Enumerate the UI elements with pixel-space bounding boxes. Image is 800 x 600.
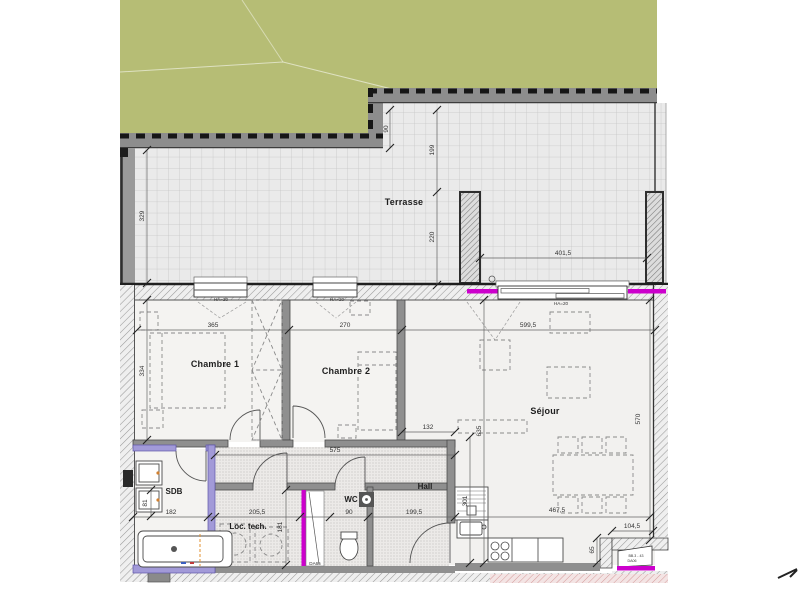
interior-door-label: DA65 xyxy=(309,561,321,566)
dim-living-depth: 570 xyxy=(635,413,642,424)
bathtub-inner xyxy=(143,536,223,562)
kitchen-counter xyxy=(488,538,563,562)
service-wall-3 xyxy=(365,483,447,490)
bottom-wall-right xyxy=(455,563,600,571)
wall-post xyxy=(120,148,128,157)
sliding-door-sill-label: HA=20 xyxy=(554,301,569,306)
pillar-left xyxy=(460,192,480,283)
room-label-wc: WC xyxy=(344,495,358,504)
window1-sill-label: HA=20 xyxy=(214,297,229,302)
toilet-tank xyxy=(341,532,357,539)
entrance-door-label-1: BB.3 - 43 xyxy=(629,554,644,558)
cold-water-mark xyxy=(181,562,186,564)
dim-bedroom1-width: 365 xyxy=(208,322,219,329)
sill-magenta-left xyxy=(467,289,498,294)
dim-living-width: 599,5 xyxy=(520,322,537,329)
right-wall xyxy=(653,285,668,537)
wc-washbasin-drain xyxy=(365,498,368,501)
washbasin-1-faucet xyxy=(156,471,159,474)
corridor-wall-3 xyxy=(325,440,455,447)
entrance-door-label-2: DA06 xyxy=(628,559,637,563)
wall-bedroom2-living xyxy=(397,300,405,440)
washbasin-1-bowl xyxy=(139,464,159,482)
dim-living-length: 635 xyxy=(476,425,483,436)
dim-technical-depth: 181 xyxy=(277,521,284,532)
dim-wc-width: 90 xyxy=(345,509,353,516)
dim-bedroom1-depth: 334 xyxy=(139,365,146,376)
dim-entry-width: 104,5 xyxy=(624,523,641,530)
service-wall-2 xyxy=(287,483,335,490)
dim-corridor-length: 575 xyxy=(330,447,341,454)
pillar-right xyxy=(646,192,663,283)
window2-sill-label: HA=20 xyxy=(330,297,345,302)
dim-terrace-depth-1: 199 xyxy=(429,144,436,155)
dim-terrace-step: 90 xyxy=(383,125,390,133)
room-label-terrace: Terrasse xyxy=(385,197,423,207)
kitchen-sink-bowl xyxy=(460,522,482,535)
room-label-bedroom2: Chambre 2 xyxy=(322,366,370,376)
bottom-wall-pink-hatch xyxy=(490,574,668,583)
dim-entry-depth: 65 xyxy=(589,546,596,554)
exterior-step xyxy=(148,572,170,582)
sliding-door-panel-1 xyxy=(501,289,589,294)
room-label-bathroom: SDB xyxy=(166,487,183,496)
bathtub-drain xyxy=(171,546,177,552)
toilet-bowl xyxy=(340,536,358,560)
corridor-wall-2 xyxy=(260,440,293,447)
interior-door-leaf-panel xyxy=(306,491,324,566)
interior-door-magenta-frame xyxy=(302,490,307,566)
bathroom-wall-top-left xyxy=(133,445,176,451)
floor-plan: 90 199 220 329 401,5 365 270 599,5 334 5… xyxy=(0,0,800,600)
room-label-living: Séjour xyxy=(530,406,560,416)
washbasin-2-faucet xyxy=(156,498,159,501)
sliding-door-panel-2 xyxy=(556,294,624,299)
sill-magenta-right xyxy=(628,289,666,294)
terrace-left-wall xyxy=(120,148,135,283)
room-label-bedroom1: Chambre 1 xyxy=(191,359,239,369)
dim-living-gap: 132 xyxy=(423,424,434,431)
entry-niche-side-wall xyxy=(600,538,612,568)
wall-hall-living xyxy=(447,440,455,523)
hall-floor-lower xyxy=(371,447,449,567)
service-wall-1 xyxy=(215,483,253,490)
left-wall xyxy=(120,285,135,582)
dim-terrace-depth-2: 220 xyxy=(429,231,436,242)
dim-technical-width: 205,5 xyxy=(249,509,266,516)
dim-bathroom-width: 182 xyxy=(166,509,177,516)
room-label-technical: Loc. tech. xyxy=(229,522,266,531)
dim-kitchen-run: 467,5 xyxy=(549,507,566,514)
dim-terrace-side: 329 xyxy=(139,210,146,221)
hot-water-mark xyxy=(190,562,194,564)
dim-basin-offset: 81 xyxy=(142,499,149,507)
room-label-hall: Hall xyxy=(418,482,433,491)
dim-terrace-bay: 401,5 xyxy=(555,250,572,257)
duct-block xyxy=(123,470,133,487)
entrance-door-magenta-sill xyxy=(617,566,655,571)
dim-hall-width: 199,5 xyxy=(406,509,423,516)
dim-kitchen-column: 301 xyxy=(462,495,469,506)
wall-bedroom1-bedroom2 xyxy=(282,300,290,440)
dim-bedroom2-width: 270 xyxy=(340,322,351,329)
